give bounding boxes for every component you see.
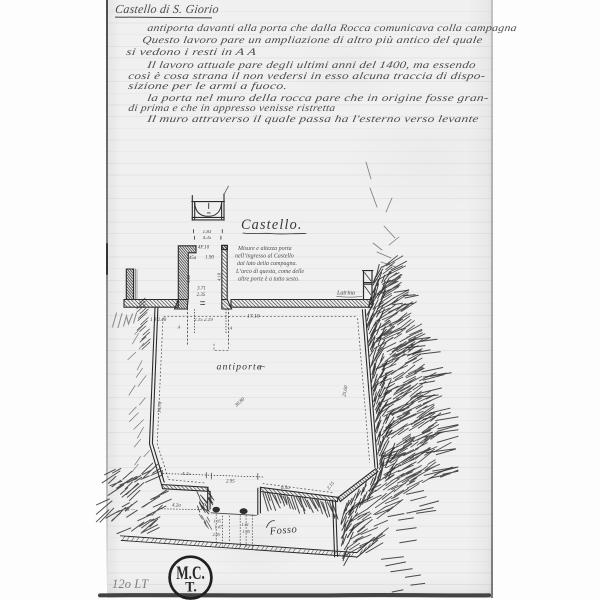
svg-text:T.: T.: [185, 580, 197, 596]
svg-text:2.15 2.19: 2.15 2.19: [194, 318, 213, 323]
svg-text:1.83: 1.83: [203, 230, 212, 235]
svg-text:antiporta: antiporta: [217, 361, 263, 372]
svg-text:1.05: 1.05: [214, 519, 221, 524]
svg-text:1 8 2.40: 1 8 2.40: [150, 318, 167, 323]
svg-text:25.60: 25.60: [343, 385, 350, 397]
svg-text:4.2a: 4.2a: [172, 504, 181, 509]
svg-text:1.90: 1.90: [205, 255, 214, 260]
svg-text:2.15: 2.15: [327, 481, 337, 491]
svg-text:1.61: 1.61: [242, 522, 249, 527]
svg-text:Latrina: Latrina: [336, 291, 355, 297]
svg-text:L’arco di questa, come delle: L’arco di questa, come delle: [235, 269, 304, 275]
svg-text:altre porte è a tutto sesto.: altre porte è a tutto sesto.: [238, 276, 299, 282]
svg-text:30.80: 30.80: [234, 397, 246, 409]
svg-text:12o LT: 12o LT: [112, 577, 149, 591]
svg-text:45a: 45a: [189, 256, 197, 261]
svg-text:Misure e altezza porta: Misure e altezza porta: [237, 246, 292, 252]
svg-text:2.35: 2.35: [197, 293, 206, 298]
svg-text:4.18: 4.18: [216, 272, 221, 281]
svg-text:1.47: 1.47: [215, 525, 223, 530]
svg-text:A: A: [229, 325, 233, 330]
svg-text:6.5a: 6.5a: [281, 486, 290, 491]
svg-text:nell’ingresso al Castello: nell’ingresso al Castello: [235, 254, 294, 260]
svg-text:4.35: 4.35: [203, 236, 212, 241]
svg-text:17.10: 17.10: [247, 314, 260, 320]
svg-text:14.70: 14.70: [158, 401, 164, 413]
svg-text:A: A: [177, 324, 181, 329]
svg-text:2.95: 2.95: [226, 480, 235, 485]
svg-text:4F.10: 4F.10: [198, 246, 210, 251]
svg-text:dal lato della campagna.: dal lato della campagna.: [237, 261, 297, 267]
svg-text:3.71: 3.71: [197, 287, 206, 292]
svg-text:Castello.: Castello.: [241, 217, 303, 233]
svg-text:Fosso: Fosso: [268, 524, 297, 537]
